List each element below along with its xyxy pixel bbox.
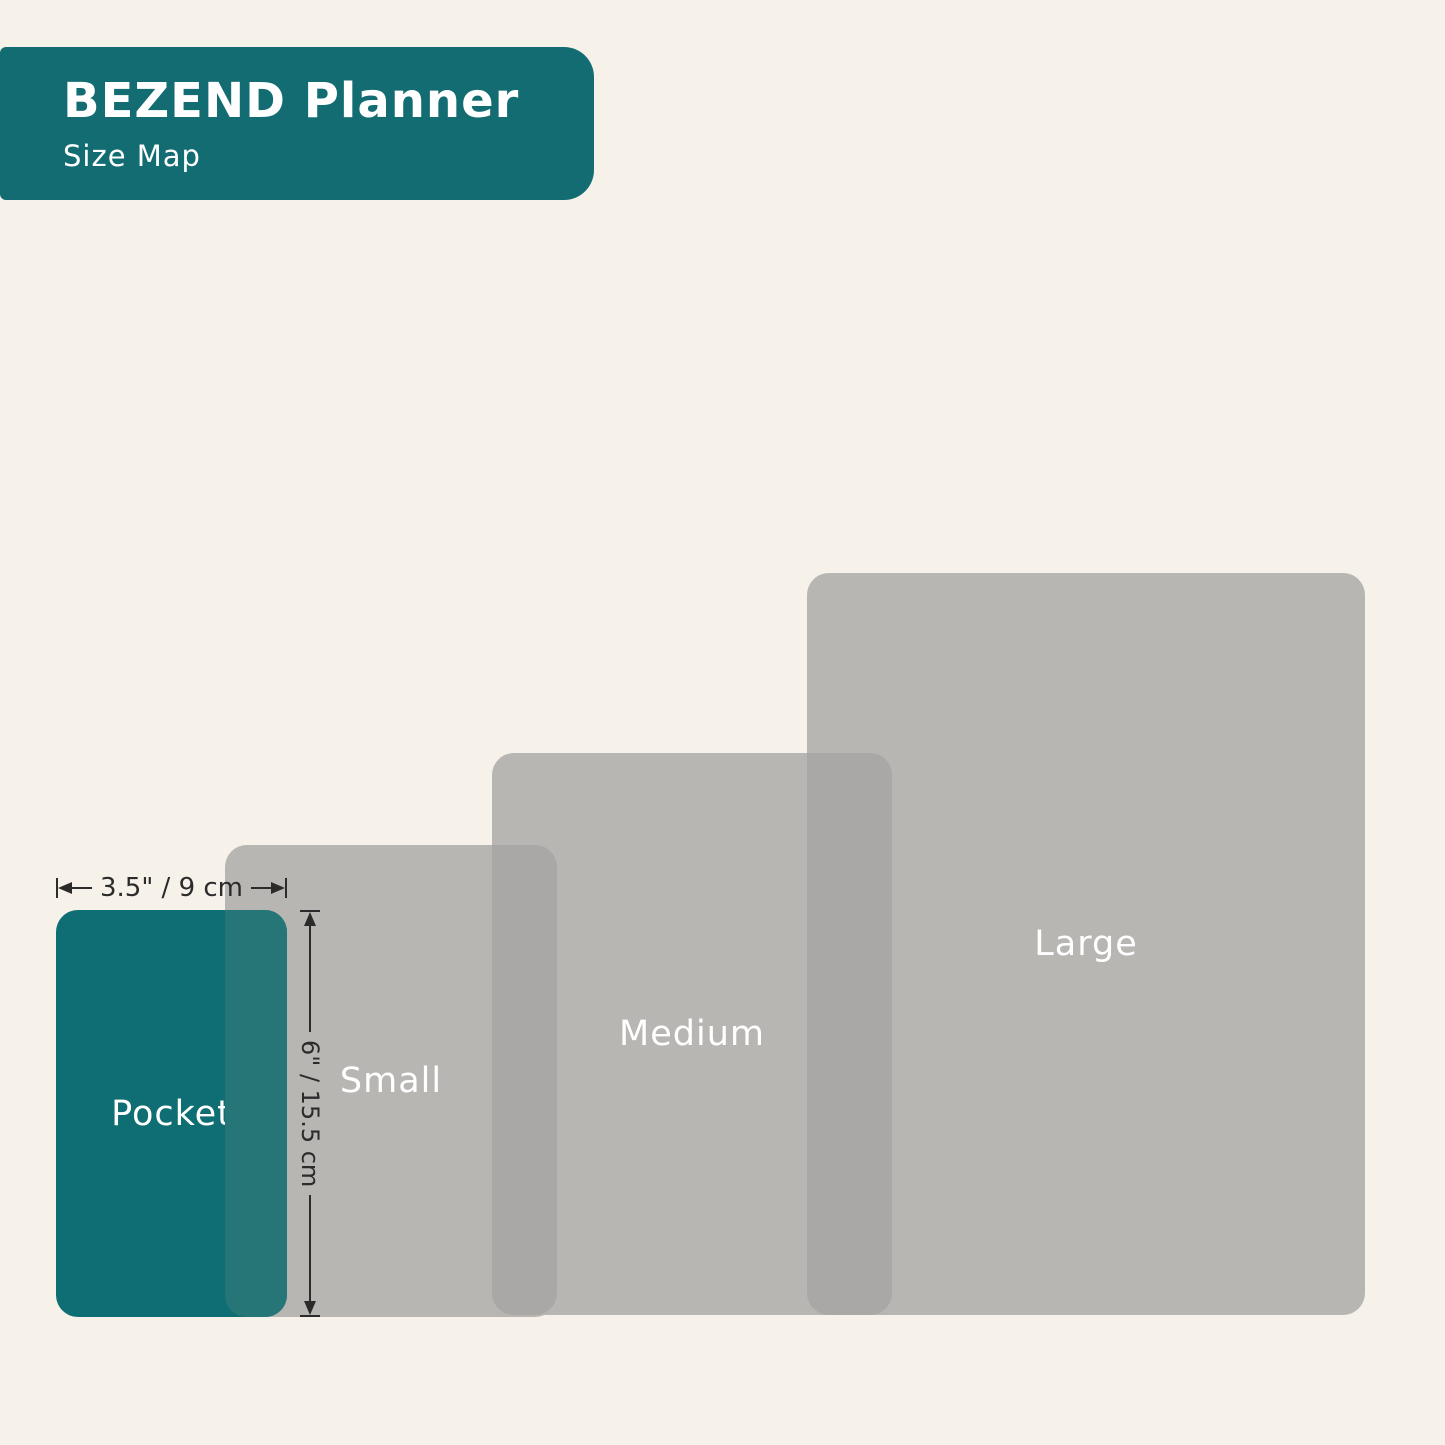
dimension-line bbox=[72, 887, 92, 889]
dimension-tick bbox=[300, 1315, 320, 1317]
overlap-strip-large-medium bbox=[807, 753, 892, 1315]
dimension-line bbox=[251, 887, 271, 889]
overlap-strip-small-pocket bbox=[225, 910, 287, 1317]
header-card: BEZEND Planner Size Map bbox=[0, 47, 594, 200]
size-label-medium: Medium bbox=[619, 1014, 765, 1054]
dimension-line bbox=[309, 1195, 311, 1301]
arrow-left-icon bbox=[58, 882, 72, 894]
overlap-strip-medium-small bbox=[492, 845, 557, 1315]
arrow-up-icon bbox=[304, 912, 316, 926]
page-subtitle: Size Map bbox=[63, 139, 594, 173]
page-title: BEZEND Planner bbox=[63, 74, 594, 129]
height-dimension: 6" / 15.5 cm bbox=[292, 910, 328, 1317]
height-dimension-label: 6" / 15.5 cm bbox=[296, 1032, 324, 1195]
size-label-pocket: Pocket bbox=[111, 1094, 232, 1134]
width-dimension-label: 3.5" / 9 cm bbox=[92, 873, 251, 903]
arrow-down-icon bbox=[304, 1301, 316, 1315]
size-map-canvas: BEZEND Planner Size Map LargeMediumSmall… bbox=[0, 0, 1445, 1445]
size-label-large: Large bbox=[1034, 924, 1137, 964]
size-label-small: Small bbox=[340, 1061, 442, 1101]
arrow-right-icon bbox=[271, 882, 285, 894]
width-dimension: 3.5" / 9 cm bbox=[56, 870, 287, 906]
dimension-line bbox=[309, 926, 311, 1032]
dimension-tick bbox=[285, 878, 287, 898]
